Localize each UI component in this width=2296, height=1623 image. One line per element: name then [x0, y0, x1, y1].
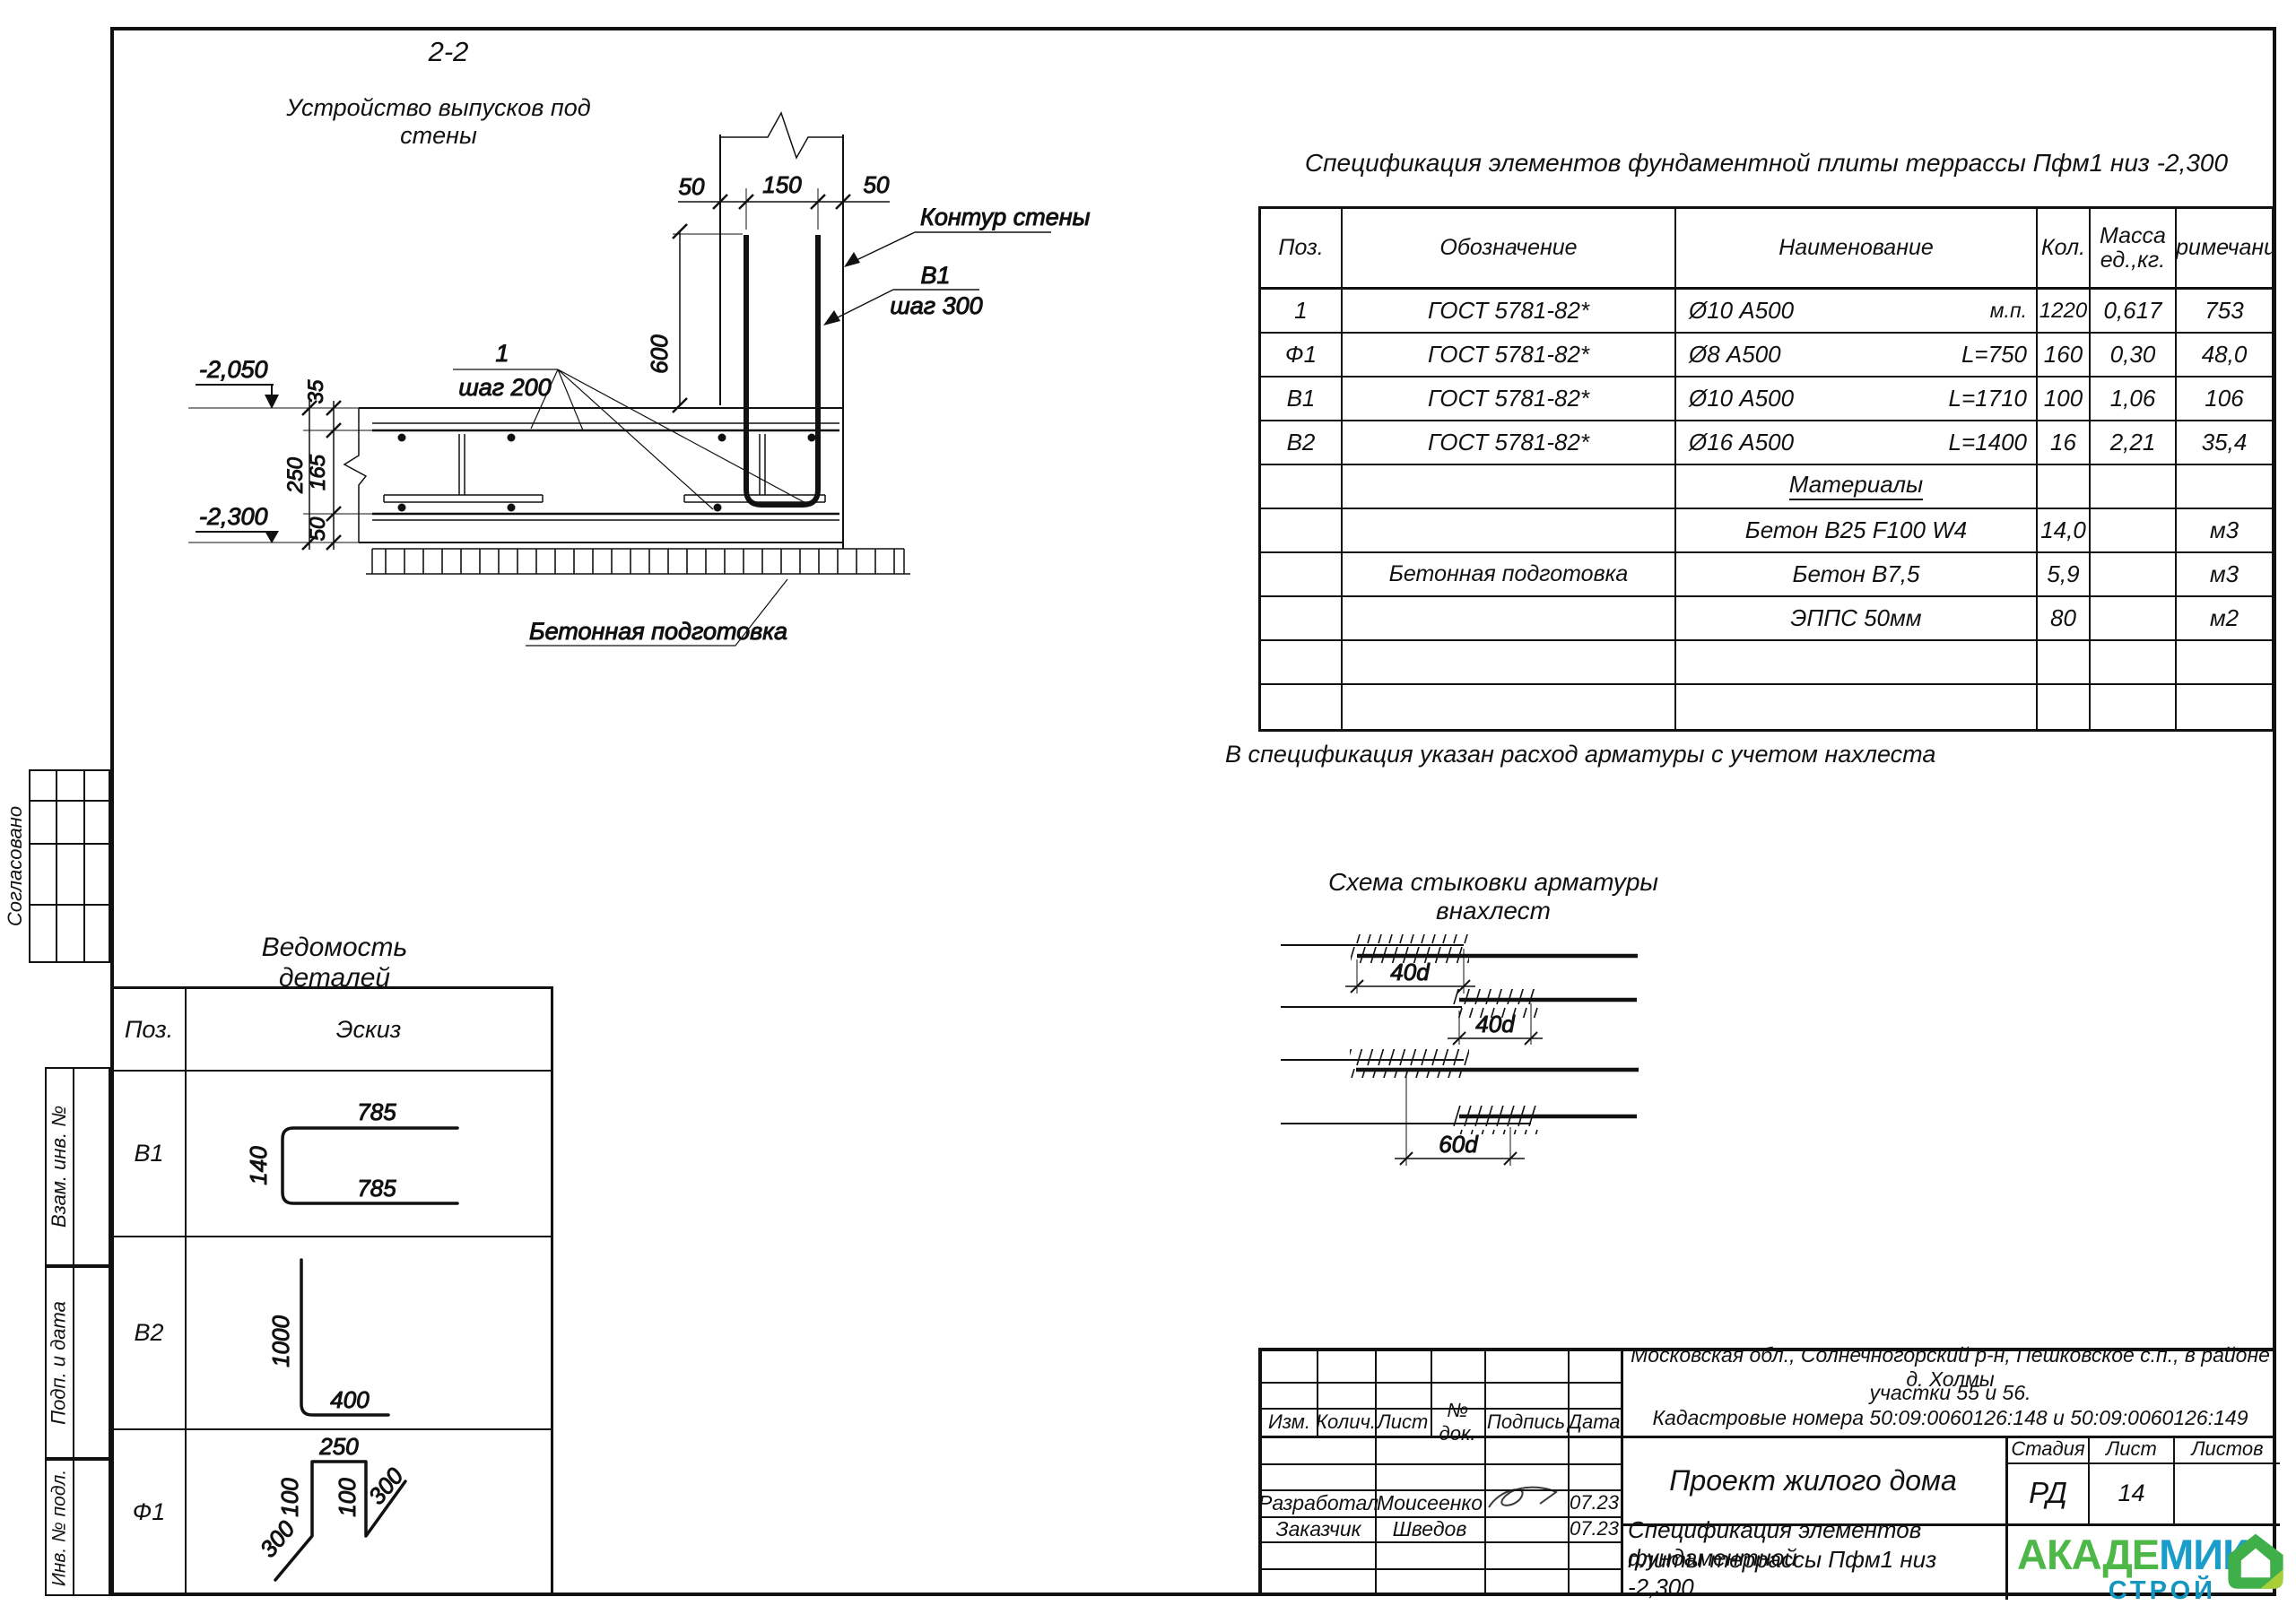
spec-cell	[2177, 685, 2272, 729]
stamp-agreed-grid	[29, 769, 110, 963]
tb-row2-role: Заказчик	[1262, 1516, 1375, 1541]
spec-cell: ГОСТ 5781-82*	[1343, 378, 1676, 421]
spec-name: Ø16 А500	[1689, 430, 1794, 455]
spec-cell	[2091, 509, 2177, 553]
spec-cell: 100	[2038, 378, 2091, 421]
tb-stage-label: Стадия	[2008, 1436, 2088, 1462]
spec-cell: ГОСТ 5781-82*	[1343, 290, 1676, 334]
spec-cell: Ø10 А500м.п.	[1676, 290, 2038, 334]
drawing-sheet: 50 150 50 600 Контур стены В1 шаг 300 1 …	[0, 0, 2296, 1623]
logo-wordmark: АКАДЕМИК	[2017, 1533, 2248, 1575]
spec-cell	[1343, 465, 1676, 509]
tb-line	[1262, 1541, 1621, 1543]
logo-word-part1: АКАДЕ	[2017, 1531, 2159, 1578]
spec-cell: 2,21	[2091, 421, 2177, 465]
section-title: 2-2	[386, 36, 511, 68]
spec-cell: 160	[2038, 334, 2091, 378]
spec-name: Ø10 А500	[1689, 299, 1794, 323]
spec-cell: 14,0	[2038, 509, 2091, 553]
spec-cell: В1	[1261, 378, 1343, 421]
spec-cell	[2177, 641, 2272, 685]
spec-cell: 16	[2038, 421, 2091, 465]
tb-address-line1: Московская обл., Солнечногорский р-н, Пе…	[1625, 1355, 2275, 1380]
spec-cell: В2	[1261, 421, 1343, 465]
spec-cell	[2177, 465, 2272, 509]
stamp-agreed-label: Согласовано	[4, 769, 27, 963]
tb-sheet-label: Лист	[2090, 1436, 2173, 1462]
spec-detail: L=1710	[1949, 386, 2027, 411]
spec-cell	[2091, 597, 2177, 641]
tb-line	[1262, 1568, 1621, 1570]
tb-address-line2: участки 55 и 56.	[1625, 1380, 2275, 1405]
spec-cell: 753	[2177, 290, 2272, 334]
spec-cell: м3	[2177, 553, 2272, 597]
spec-cell	[2091, 553, 2177, 597]
stamp-inv-orig-label: Инв. № подл.	[46, 1460, 74, 1597]
spec-cell	[2038, 465, 2091, 509]
spec-col-mass-line1: Масса	[2100, 224, 2166, 247]
spec-cell	[1261, 465, 1343, 509]
spec-detail: L=1400	[1949, 430, 2027, 455]
tb-address-line3: Кадастровые номера 50:09:0060126:148 и 5…	[1625, 1405, 2275, 1430]
spec-cell: 1220	[2038, 290, 2091, 334]
spec-col-mass: Масса ед.,кг.	[2091, 209, 2177, 290]
spec-col-qty: Кол.	[2038, 209, 2091, 290]
spec-cell	[1261, 553, 1343, 597]
splice-title: Схема стыковки арматуры внахлест	[1283, 868, 1704, 925]
logo-subword: СТРОЙ	[2017, 1578, 2216, 1604]
spec-cell: 35,4	[2177, 421, 2272, 465]
title-block: Изм. Колич. Лист № док. Подпись Дата Раз…	[1258, 1348, 2276, 1596]
grid-line	[30, 904, 109, 906]
tb-col-kolich: Колич.	[1317, 1408, 1375, 1436]
tb-col-doc: № док.	[1431, 1408, 1484, 1436]
spec-col-designation: Обозначение	[1343, 209, 1676, 290]
spec-cell: ГОСТ 5781-82*	[1343, 334, 1676, 378]
spec-cell: 0,617	[2091, 290, 2177, 334]
spec-cell	[1343, 685, 1676, 729]
spec-cell	[1261, 597, 1343, 641]
details-col-sketch: Эскиз	[187, 989, 551, 1072]
spec-cell: Ø16 А500L=1400	[1676, 421, 2038, 465]
spec-cell: ГОСТ 5781-82*	[1343, 421, 1676, 465]
spec-name: Ø8 А500	[1689, 343, 1781, 367]
tb-sheets-value	[2175, 1464, 2280, 1522]
details-row-b2-sketch	[187, 1237, 551, 1430]
details-title: Ведомость деталей	[213, 933, 456, 994]
spec-table-title: Спецификация элементов фундаментной плит…	[1258, 149, 2274, 178]
spec-table: Поз. Обозначение Наименование Кол. Масса…	[1258, 206, 2274, 732]
details-row-b2-pos: В2	[113, 1237, 187, 1430]
spec-cell	[1676, 685, 2038, 729]
tb-line	[1375, 1351, 1377, 1593]
spec-cell: Ø10 А500L=1710	[1676, 378, 2038, 421]
tb-line	[1484, 1351, 1486, 1593]
tb-row1-date: 07.23	[1568, 1489, 1621, 1516]
spec-cell: 80	[2038, 597, 2091, 641]
tb-row1-name: Моисеенко	[1375, 1489, 1484, 1516]
spec-col-pos: Поз.	[1261, 209, 1343, 290]
tb-row2-date: 07.23	[1568, 1516, 1621, 1541]
spec-cell: ЭППС 50мм	[1676, 597, 2038, 641]
spec-cell: 48,0	[2177, 334, 2272, 378]
spec-cell	[2038, 685, 2091, 729]
spec-cell: 1,06	[2091, 378, 2177, 421]
tb-sheets-label: Листов	[2175, 1436, 2280, 1462]
spec-cell: Ø8 А500L=750	[1676, 334, 2038, 378]
spec-cell: Материалы	[1676, 465, 2038, 509]
tb-row2-name: Шведов	[1375, 1516, 1484, 1541]
spec-col-name: Наименование	[1676, 209, 2038, 290]
spec-footnote: В спецификация указан расход арматуры с …	[1225, 741, 1935, 768]
spec-cell	[1343, 641, 1676, 685]
tb-project-name: Проект жилого дома	[1621, 1438, 2005, 1523]
stamp-replace-inv-label: Взам. инв. №	[45, 1067, 74, 1266]
spec-cell	[1261, 509, 1343, 553]
spec-cell: Бетон В25 F100 W4	[1676, 509, 2038, 553]
spec-cell	[2091, 641, 2177, 685]
details-table: Поз. Эскиз В1 В2 Ф1	[110, 986, 553, 1596]
spec-cell: Ф1	[1261, 334, 1343, 378]
tb-col-list: Лист	[1375, 1408, 1431, 1436]
spec-cell	[1676, 641, 2038, 685]
tb-line	[1262, 1463, 1621, 1465]
tb-sheet-value: 14	[2090, 1464, 2173, 1522]
grid-line	[30, 800, 109, 802]
spec-group-header: Материалы	[1789, 473, 1923, 499]
tb-line	[1568, 1351, 1570, 1593]
spec-cell	[2091, 465, 2177, 509]
spec-col-mass-line2: ед.,кг.	[2100, 248, 2165, 272]
spec-cell: 0,30	[2091, 334, 2177, 378]
spec-cell: Бетон В7,5	[1676, 553, 2038, 597]
spec-cell: 5,9	[2038, 553, 2091, 597]
spec-cell	[2038, 641, 2091, 685]
tb-row1-role: Разработал	[1262, 1489, 1375, 1516]
spec-name: Ø10 А500	[1689, 386, 1794, 411]
spec-detail: L=750	[1961, 343, 2027, 367]
spec-cell	[2091, 685, 2177, 729]
spec-cell: м2	[2177, 597, 2272, 641]
details-row-b1-pos: В1	[113, 1072, 187, 1237]
details-row-f1-pos: Ф1	[113, 1430, 187, 1593]
spec-cell	[1343, 509, 1676, 553]
spec-cell: м3	[2177, 509, 2272, 553]
spec-cell	[1261, 685, 1343, 729]
spec-cell	[1261, 641, 1343, 685]
logo-house-icon	[2223, 1529, 2288, 1597]
tb-col-izm: Изм.	[1262, 1408, 1317, 1436]
details-col-pos: Поз.	[113, 989, 187, 1072]
section-subtitle: Устройство выпусков под стены	[268, 94, 609, 150]
tb-stage-value: РД	[2008, 1464, 2088, 1522]
spec-cell	[1343, 597, 1676, 641]
spec-cell: 1	[1261, 290, 1343, 334]
spec-col-note: Примечание	[2177, 209, 2272, 290]
stamp-sign-date-label: Подп. и дата	[45, 1267, 74, 1460]
spec-cell: 106	[2177, 378, 2272, 421]
tb-doc-title-line2: плиты террассы Пфм1 низ -2,300	[1628, 1560, 2005, 1587]
details-row-f1-sketch	[187, 1430, 551, 1593]
tb-col-sign: Подпись	[1484, 1408, 1568, 1436]
spec-cell: Бетонная подготовка	[1343, 553, 1676, 597]
tb-col-date: Дата	[1568, 1408, 1621, 1436]
details-row-b1-sketch	[187, 1072, 551, 1237]
spec-detail: м.п.	[1990, 299, 2027, 321]
tb-line	[1262, 1382, 1621, 1384]
grid-line	[30, 843, 109, 845]
